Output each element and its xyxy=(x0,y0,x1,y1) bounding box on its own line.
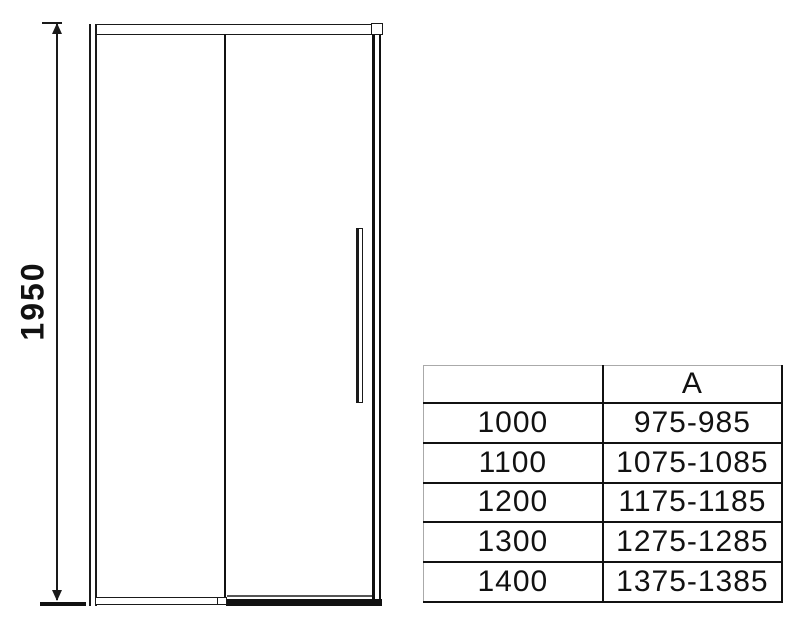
table-row: 1400 1375-1385 xyxy=(424,562,783,602)
right-frame-inner-line xyxy=(372,34,375,606)
dimension-arrow-up-icon xyxy=(52,23,62,34)
table-cell-a: 1275-1285 xyxy=(603,522,782,562)
table-cell-a: 1375-1385 xyxy=(603,562,782,602)
table-row: 1200 1175-1185 xyxy=(424,483,783,523)
table-cell-width: 1200 xyxy=(424,483,603,523)
table-header-cell-width xyxy=(424,366,603,404)
dimension-arrow-down-icon xyxy=(52,590,62,601)
right-frame-outer-line xyxy=(379,34,381,606)
sliding-panel-bottom-edge xyxy=(227,595,372,597)
table-row: 1300 1275-1285 xyxy=(424,522,783,562)
top-rail xyxy=(96,24,377,35)
floor-baseline xyxy=(40,602,86,606)
table-row: 1100 1075-1085 xyxy=(424,443,783,483)
size-table-header-row: A xyxy=(424,366,783,404)
table-cell-a: 975-985 xyxy=(603,403,782,443)
dimension-line xyxy=(56,24,58,600)
size-table: A 1000 975-985 1100 1075-1085 1200 1175-… xyxy=(423,365,783,603)
bottom-guide-block xyxy=(217,597,227,605)
product-spec-sheet: 1950 A 1000 975-985 1100 1075-1085 xyxy=(0,0,800,626)
table-header-cell-a: A xyxy=(603,366,782,404)
table-cell-width: 1000 xyxy=(424,403,603,443)
table-cell-width: 1100 xyxy=(424,443,603,483)
height-dimension-label: 1950 xyxy=(15,261,52,340)
bottom-rail-left xyxy=(96,597,219,605)
door-handle xyxy=(356,228,363,403)
table-cell-a: 1175-1185 xyxy=(603,483,782,523)
table-row: 1000 975-985 xyxy=(424,403,783,443)
roller-bracket-square xyxy=(371,23,383,35)
table-cell-width: 1400 xyxy=(424,562,603,602)
panel-divider-line xyxy=(224,34,226,599)
table-cell-width: 1300 xyxy=(424,522,603,562)
table-cell-a: 1075-1085 xyxy=(603,443,782,483)
bottom-seal-bar xyxy=(226,599,382,606)
wall-profile-left xyxy=(89,24,97,606)
